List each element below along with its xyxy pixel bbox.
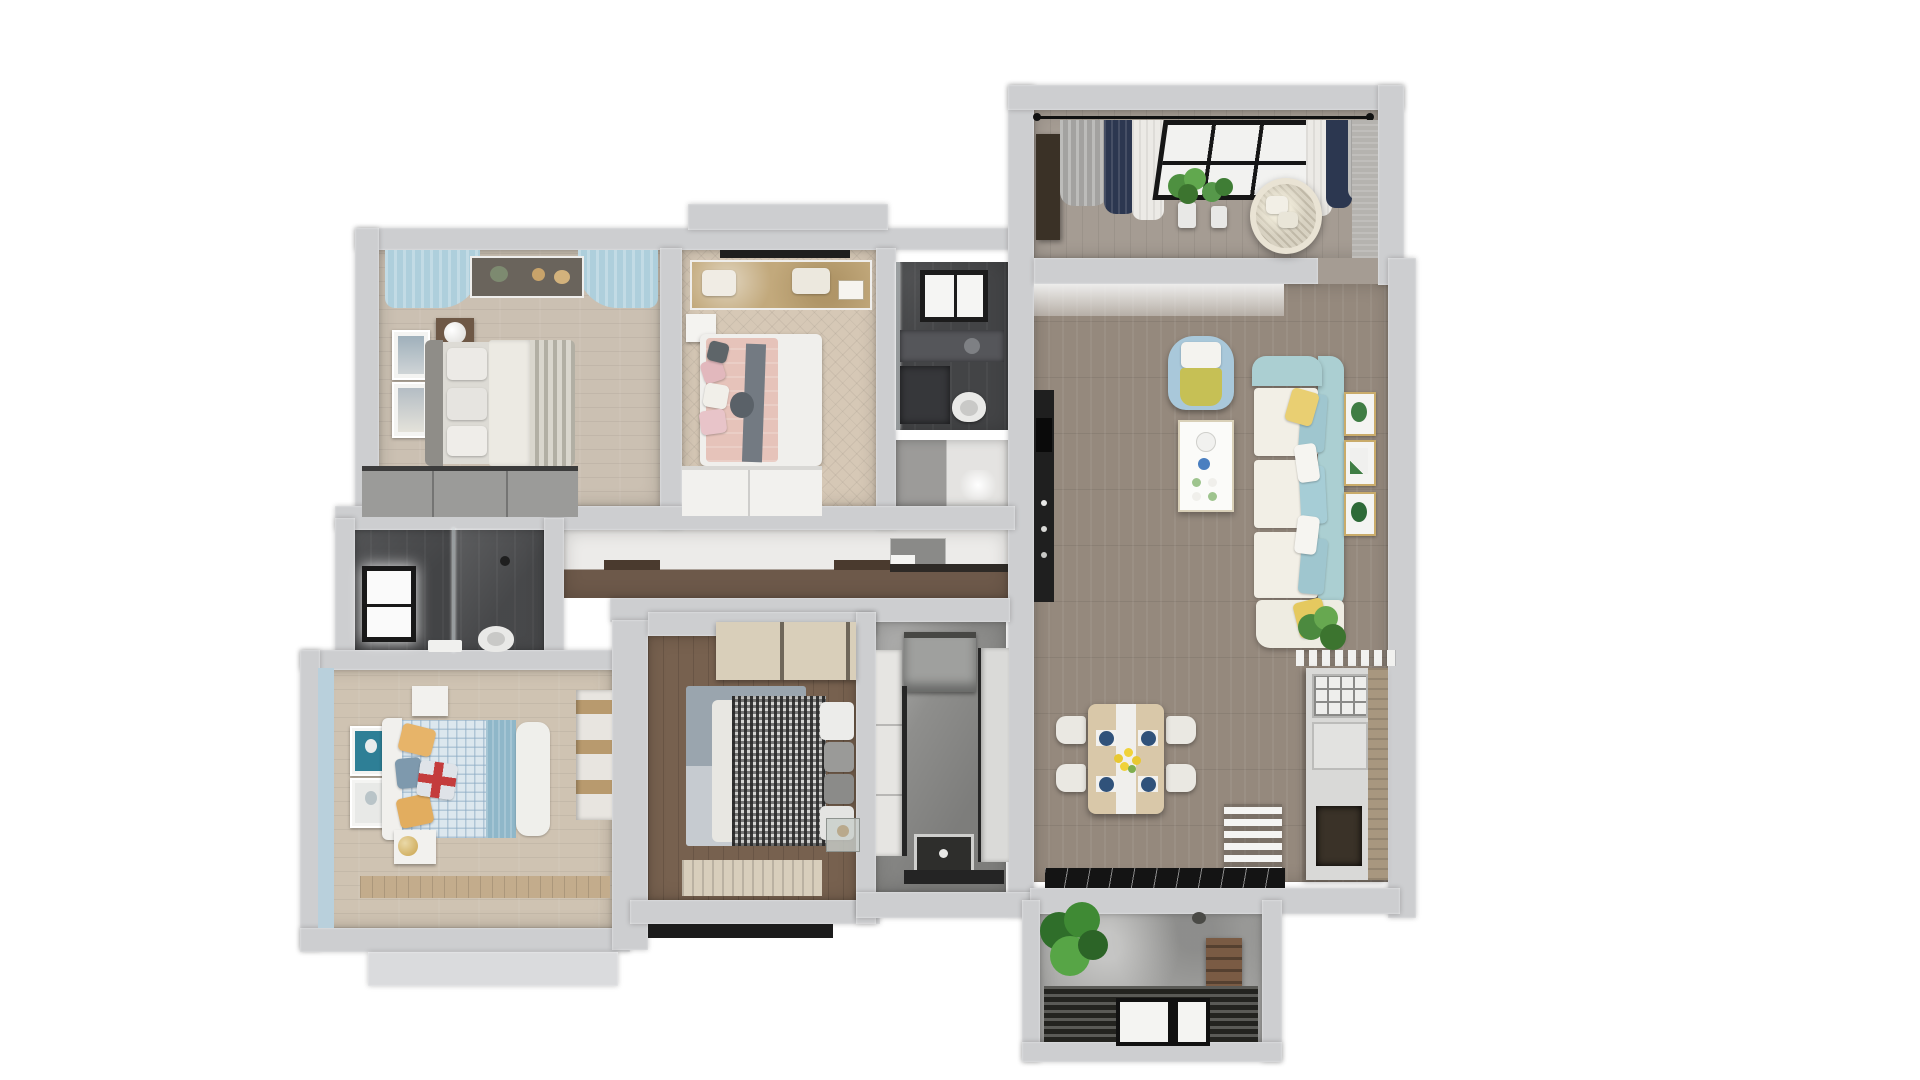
built-in-wardrobe (576, 690, 612, 820)
window-desk (690, 260, 872, 310)
wall (300, 650, 630, 670)
blue-plate (1099, 777, 1114, 792)
dining-chair (1056, 764, 1086, 792)
wall (856, 892, 1036, 918)
gray-pillow (824, 774, 854, 804)
threshold-strip (648, 924, 833, 938)
wall (300, 650, 320, 950)
black-kitchenette-counter (1034, 390, 1054, 602)
wall (660, 248, 682, 528)
ceiling-soffit (1034, 284, 1284, 316)
mattress-edge (712, 700, 734, 842)
bed-pillow (447, 348, 487, 380)
blue-plate (1141, 731, 1156, 746)
pergola-slats (1296, 650, 1396, 666)
apartment-plan (0, 0, 1920, 1080)
desk-pillow (702, 270, 736, 296)
cabinet-side-wood (1368, 668, 1388, 880)
headboard (425, 340, 443, 466)
hallway-door-frame (604, 560, 660, 570)
cup (1208, 492, 1217, 501)
round-cushion (730, 392, 754, 418)
coffee-table (1178, 420, 1234, 512)
union-jack-pillow (416, 760, 459, 801)
wall (335, 518, 355, 658)
flower-centerpiece (1112, 748, 1142, 774)
dark-marble-entry-floor (1045, 868, 1285, 888)
hallway-door-frame (834, 560, 890, 570)
sofa-arm-top (1252, 356, 1322, 386)
white-duvet (489, 340, 533, 466)
bright-window (362, 566, 416, 642)
dining-chair (1166, 716, 1196, 744)
room-shower (896, 440, 1008, 506)
bed-striped (425, 340, 575, 466)
shower-head (500, 556, 510, 566)
dark-cabinet (1036, 134, 1060, 240)
wall (856, 612, 876, 924)
cup (1192, 492, 1201, 501)
curtain-gray-left (1060, 120, 1108, 206)
wall (544, 518, 564, 658)
cabinet-glass-grid (1312, 674, 1368, 718)
wallpaper-texture (1352, 120, 1378, 258)
wall (688, 204, 888, 230)
white-pillow (820, 702, 854, 740)
white-pillow (702, 382, 730, 410)
wall (355, 228, 1015, 250)
pink-pillow (698, 408, 727, 435)
kitchen-tall-cabinet (876, 650, 902, 856)
porch-step (368, 952, 618, 986)
ledge-plant (1298, 606, 1350, 656)
kitchen-counter-right (978, 648, 1009, 862)
slatted-mat (682, 860, 822, 896)
blue-plate (1099, 731, 1114, 746)
towel (428, 640, 462, 652)
toilet (478, 626, 514, 652)
white-nightstand (412, 686, 448, 716)
vase-flowers (837, 825, 849, 837)
glass-side-table (826, 818, 860, 852)
sink-basin (964, 338, 980, 354)
potted-plant (1202, 178, 1238, 230)
white-dresser (682, 466, 822, 516)
toilet (952, 392, 986, 422)
cup (1192, 478, 1201, 487)
wall (1008, 85, 1034, 915)
bed-blue (382, 718, 552, 840)
hallway-shelf (890, 564, 1008, 572)
white-lumbar-pillow (1294, 515, 1320, 555)
window-shelf (470, 256, 584, 298)
bed-pillow (447, 426, 487, 456)
armchair-seat (1180, 368, 1222, 406)
hanging-egg-chair (1250, 178, 1322, 254)
gallery-frame (1344, 440, 1376, 486)
gray-wardrobe (362, 466, 578, 517)
decor-bowl (532, 268, 545, 281)
tv-strip (720, 250, 850, 258)
wall (1388, 258, 1416, 918)
wall (300, 928, 630, 952)
tan-wardrobe (716, 622, 856, 680)
vanity-counter (900, 330, 1004, 362)
sofa (1252, 356, 1344, 648)
bathroom-window (920, 270, 988, 322)
gallery-frame (1344, 392, 1376, 436)
cabinet-niche (1316, 806, 1362, 866)
decor-plate (1196, 432, 1216, 452)
wall (1008, 85, 1404, 110)
cooktop (1036, 418, 1052, 452)
cabinet-panel (1312, 722, 1368, 770)
wall (876, 248, 896, 528)
curtain-rod (1036, 116, 1372, 119)
wall (1262, 900, 1282, 1062)
range-hood (904, 632, 976, 692)
dining-table (1088, 704, 1164, 814)
white-roll-pillow (516, 722, 550, 836)
shower-area (900, 366, 950, 424)
wall-hook-decor (1192, 912, 1206, 924)
room-hallway (564, 530, 1008, 598)
wall (1378, 85, 1404, 285)
houndstooth-overlay (732, 696, 826, 846)
wall (1034, 258, 1318, 284)
armchair-pillow (1181, 342, 1221, 368)
dining-chair (1056, 716, 1086, 744)
wall (630, 900, 880, 924)
cup (1208, 478, 1217, 487)
gold-lamp (398, 836, 418, 856)
white-slat-divider (1224, 804, 1282, 874)
dining-chair (1166, 764, 1196, 792)
decor-bowl (554, 270, 570, 284)
kitchen-base-shadow (904, 870, 1004, 884)
decor-plant (490, 266, 508, 282)
bed-pillow (447, 388, 487, 420)
slatted-floor-grate (1044, 986, 1258, 1042)
entry-cabinet (1306, 668, 1388, 880)
kitchen-counter-left-edge (902, 686, 907, 856)
gallery-frame (1344, 492, 1376, 536)
window-insert (1116, 998, 1210, 1046)
gray-pillow (824, 742, 854, 772)
blue-plate (1141, 777, 1156, 792)
blue-bottle (1198, 458, 1210, 470)
blue-wall-band (318, 668, 334, 928)
desk-books (838, 280, 864, 300)
wood-mat (360, 876, 610, 898)
bed-pink (700, 334, 822, 466)
striped-duvet (530, 340, 575, 466)
doorway-floor (1318, 258, 1378, 284)
armchair (1168, 336, 1234, 410)
faucet (939, 849, 948, 858)
floor-plan-render (0, 0, 1920, 1080)
desk-pillow (792, 268, 830, 294)
white-nightstand-lamp (394, 830, 436, 864)
blue-blanket (486, 720, 516, 838)
